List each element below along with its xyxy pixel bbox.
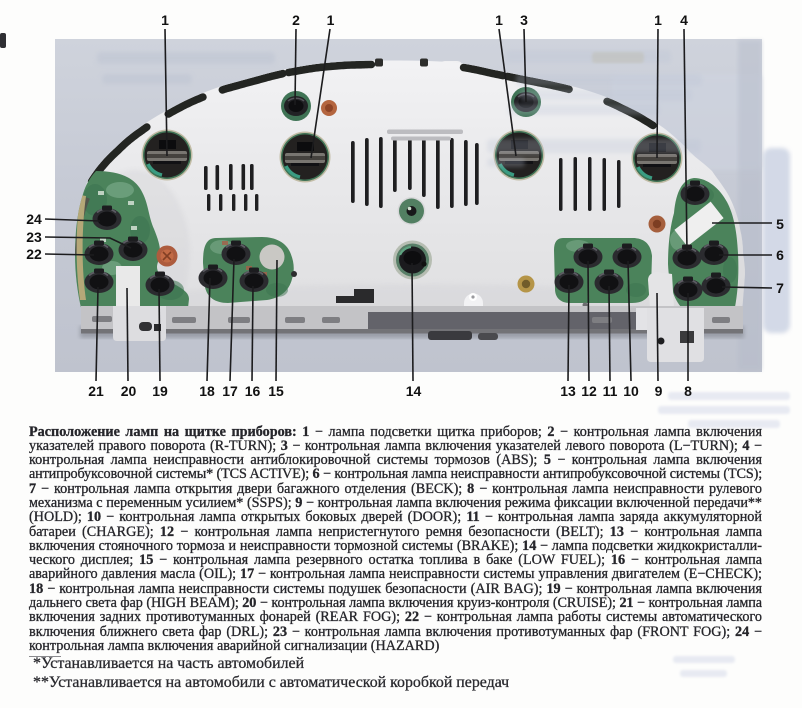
svg-text:3: 3	[520, 12, 528, 28]
svg-text:23: 23	[26, 229, 42, 245]
svg-text:15: 15	[268, 383, 284, 399]
svg-text:1: 1	[654, 12, 662, 28]
svg-text:9: 9	[655, 383, 663, 399]
svg-text:6: 6	[776, 247, 784, 263]
svg-text:5: 5	[776, 216, 784, 232]
svg-text:1: 1	[327, 12, 335, 28]
svg-text:11: 11	[603, 383, 618, 399]
svg-text:8: 8	[684, 383, 692, 399]
svg-text:1: 1	[161, 12, 169, 28]
svg-text:1: 1	[495, 12, 503, 28]
svg-text:14: 14	[406, 383, 422, 399]
svg-text:10: 10	[623, 383, 639, 399]
svg-text:2: 2	[292, 12, 300, 28]
svg-text:12: 12	[581, 383, 597, 399]
svg-text:21: 21	[88, 383, 104, 399]
svg-text:13: 13	[560, 383, 576, 399]
svg-text:19: 19	[152, 383, 168, 399]
svg-text:17: 17	[222, 383, 238, 399]
svg-text:24: 24	[26, 211, 42, 227]
svg-text:20: 20	[121, 383, 137, 399]
svg-text:22: 22	[26, 246, 42, 262]
svg-text:7: 7	[776, 280, 784, 296]
svg-text:18: 18	[199, 383, 215, 399]
svg-text:16: 16	[245, 383, 261, 399]
svg-text:4: 4	[680, 12, 688, 28]
